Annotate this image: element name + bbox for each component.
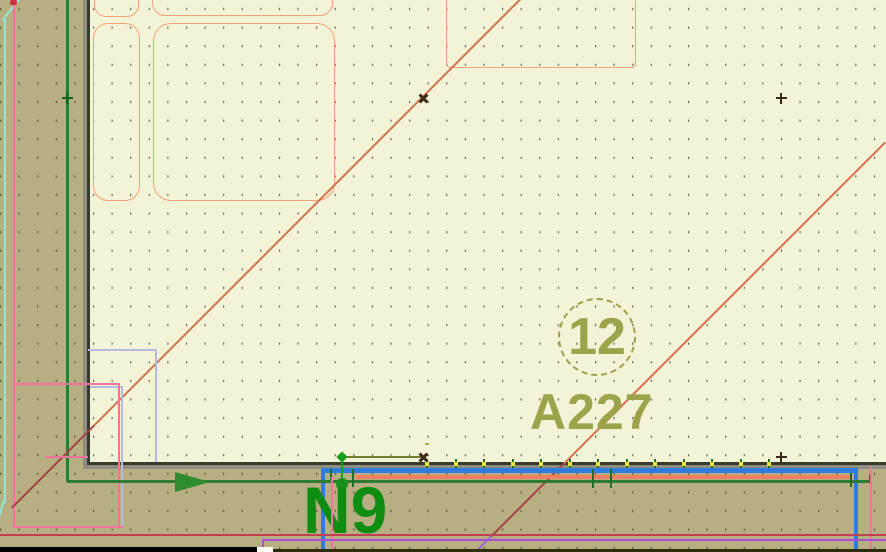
component-outline-small[interactable] [93,23,140,201]
lightblue-rect-b-top[interactable] [90,386,121,388]
cyan-guide-segment-bottom[interactable] [0,499,5,517]
green-bus-vertical[interactable] [66,0,69,482]
olive-connector-line[interactable] [341,456,423,458]
pcb-editor-canvas[interactable]: 12 A227 N9 [0,0,886,552]
component-outline-large[interactable] [153,23,335,201]
bottom-bar-olive [273,549,886,552]
pad-dot [482,462,486,466]
salmon-trace-horizontal[interactable] [356,475,852,479]
pad-dot [653,462,657,466]
zone-circle[interactable]: 12 [558,298,636,376]
pad-dot [682,462,686,466]
component-outline-rect[interactable] [446,0,636,68]
component-reference-label[interactable]: A227 [530,387,654,437]
pink-segment[interactable] [45,456,88,458]
green-via-stub-3[interactable] [592,469,594,488]
fiducial-cross-top [776,93,787,104]
bottom-bar-gap [257,547,273,552]
sheet-border-left [87,0,90,466]
crimson-edge-line[interactable] [0,534,886,536]
fiducial-cross-bottom [776,452,787,463]
purple-edge-line[interactable] [262,539,886,541]
pad-dot [739,462,743,466]
pad-dot [767,462,771,466]
ruler-segment [425,443,427,445]
diagonal-trace-2-lower[interactable] [490,462,565,537]
component-outline-small-top[interactable] [94,0,139,17]
pink-rect-bottom[interactable] [13,526,123,528]
zone-number-label: 12 [568,311,626,363]
pink-rect-right[interactable] [118,383,120,528]
pink-rect-top[interactable] [13,383,120,385]
pad-dot [511,462,515,466]
green-via-stub-5[interactable] [850,473,852,487]
pad-dot [596,462,600,466]
component-outline-wide-top[interactable] [152,0,333,16]
direction-arrow [175,472,210,492]
lightblue-rect-a-top[interactable] [88,349,156,351]
blue-trace-horizontal[interactable] [321,468,859,472]
bottom-bar-black [0,547,257,552]
green-via-stub-4[interactable] [610,469,612,488]
pad-dot [539,462,543,466]
lightblue-rect-a-right[interactable] [155,349,157,463]
lightblue-rect-b-right[interactable] [121,386,123,529]
pad-dot [710,462,714,466]
pad-dot [625,462,629,466]
red-endpoint-mark [10,0,17,5]
pad-dot [568,462,572,466]
green-grid-cross [62,93,73,104]
pad-dot [454,462,458,466]
cyan-guide-line[interactable] [4,19,6,503]
pink-edge-line-left[interactable] [13,0,15,528]
